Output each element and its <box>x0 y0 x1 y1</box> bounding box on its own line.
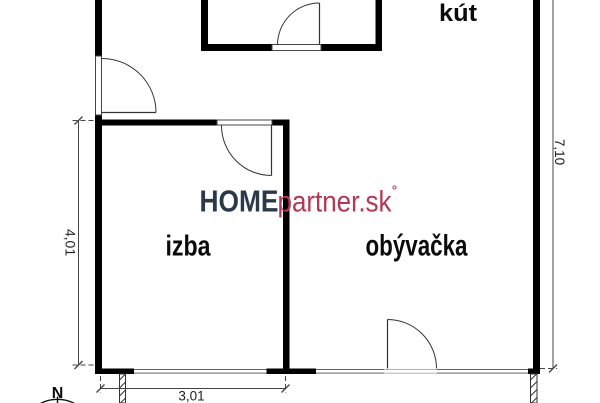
svg-text:partner.sk: partner.sk <box>278 186 392 219</box>
svg-text:obývačka: obývačka <box>366 230 468 263</box>
svg-text:7,10: 7,10 <box>552 139 567 165</box>
svg-text:4,01: 4,01 <box>63 229 79 256</box>
svg-text:izba: izba <box>166 231 212 263</box>
svg-text:N: N <box>52 385 64 402</box>
svg-text:3,01: 3,01 <box>178 389 204 403</box>
svg-text:HOME: HOME <box>200 184 279 219</box>
svg-text:kút: kút <box>439 0 477 27</box>
